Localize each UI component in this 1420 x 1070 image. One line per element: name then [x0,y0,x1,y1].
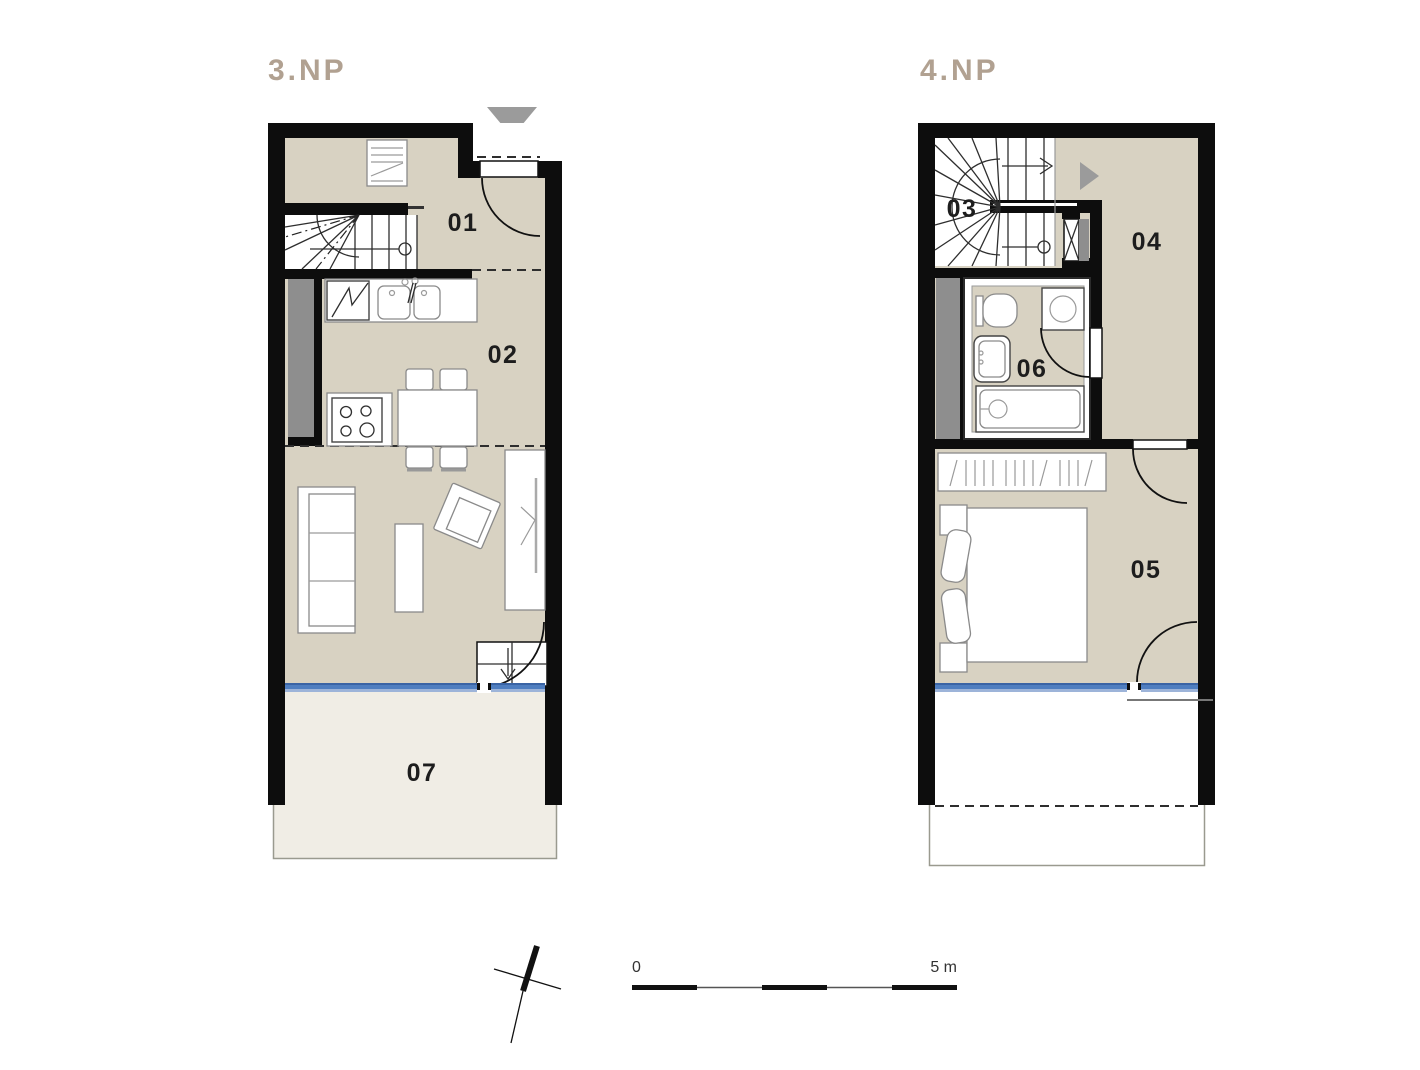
floorplan-canvas: 3.NP [0,0,1420,1070]
scale-start-label: 0 [632,959,641,976]
toilet [976,294,1017,327]
glazing-3np [285,682,545,693]
room-label-04: 04 [1132,228,1163,256]
room-label-01: 01 [448,209,479,237]
stove [327,393,392,446]
plan-4np: 4.NP [918,54,1215,866]
nightstand-bottom [940,643,967,672]
room-label-06: 06 [1017,355,1048,383]
duct-panel [1064,219,1089,261]
plan-4np-title: 4.NP [920,54,999,87]
hall-closet [367,140,407,186]
bedroom-wardrobe [938,453,1106,491]
glazing-4np [935,682,1198,693]
plan-3np-title: 3.NP [268,54,347,87]
wardrobe-living [505,450,545,610]
scale-bar: 0 5 m [632,959,957,990]
kitchen-counter [325,278,477,322]
scale-end-label: 5 m [930,959,957,976]
washing-machine [1042,288,1084,330]
north-compass-icon [494,946,561,1043]
room-label-02: 02 [488,341,519,369]
bathroom-sink [974,336,1010,382]
coffee-table [395,524,423,612]
sofa [298,487,355,633]
room-label-03: 03 [947,195,978,223]
floorplan-page: 3.NP [0,0,1420,1070]
plan-3np: 3.NP [268,54,562,859]
bathtub [976,386,1084,432]
room-label-07: 07 [407,759,438,787]
room-label-05: 05 [1131,556,1162,584]
